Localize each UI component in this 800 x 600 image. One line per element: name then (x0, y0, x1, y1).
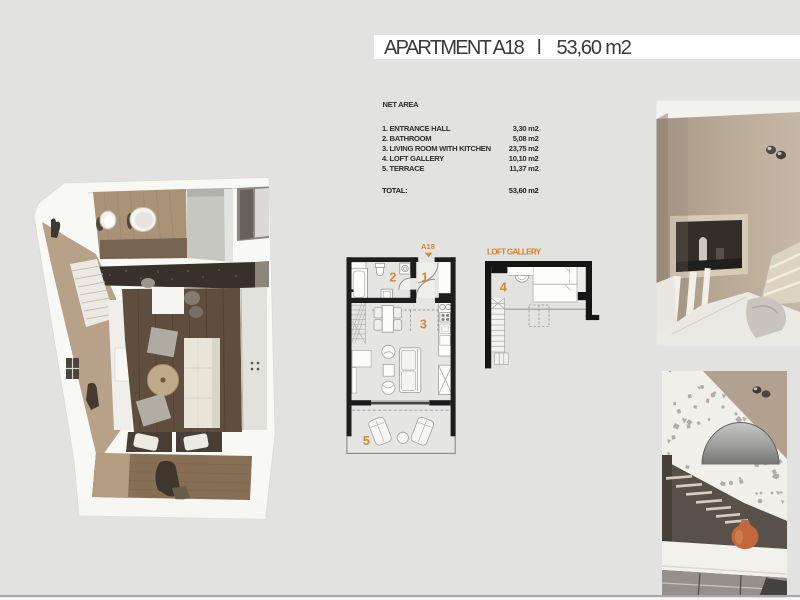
svg-text:A18: A18 (421, 242, 435, 251)
svg-text:LOFT GALLERY: LOFT GALLERY (487, 247, 542, 256)
svg-text:2: 2 (389, 270, 396, 284)
svg-text:3: 3 (420, 318, 427, 332)
svg-text:5: 5 (363, 434, 370, 448)
svg-text:4: 4 (500, 281, 507, 295)
svg-text:1: 1 (421, 270, 428, 284)
